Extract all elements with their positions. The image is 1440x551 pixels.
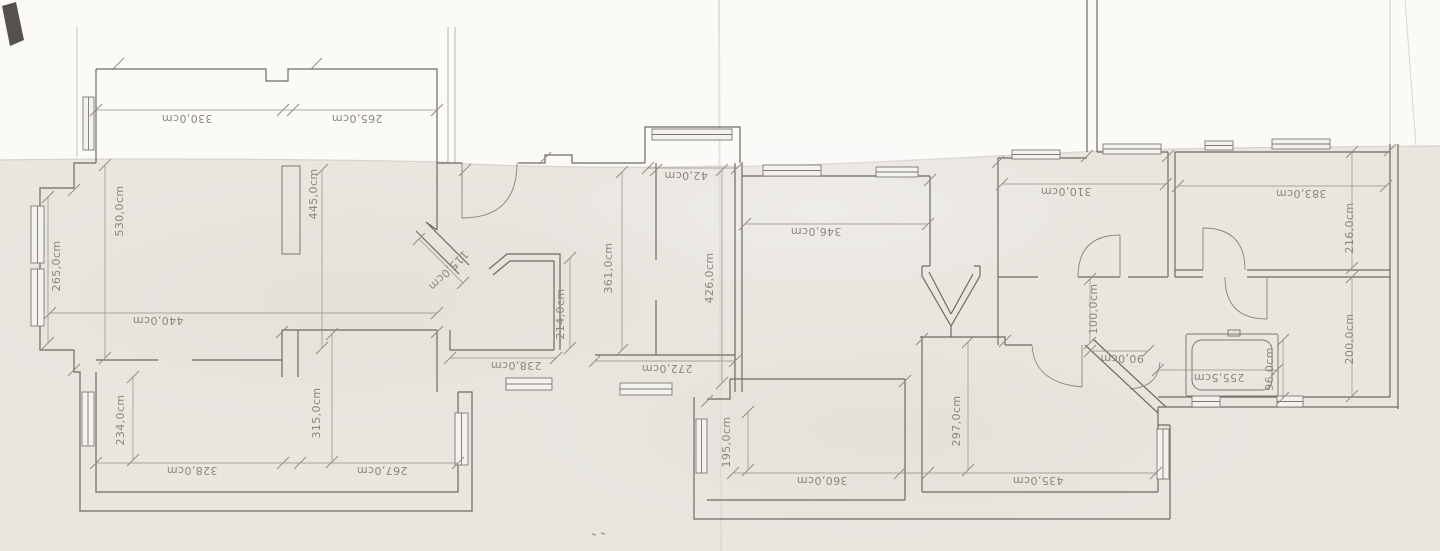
dimension-label: 267,0cm <box>356 464 407 477</box>
window <box>696 419 707 473</box>
window <box>763 165 821 176</box>
dimension-label: 195,0cm <box>720 416 733 467</box>
window <box>31 206 44 263</box>
window <box>1012 150 1060 159</box>
dimension-label: 238,0cm <box>490 359 541 372</box>
dimension-label: 200,0cm <box>1343 313 1356 364</box>
dimension-label: 360,0cm <box>796 474 847 487</box>
dimension-label: 435,0cm <box>1012 474 1063 487</box>
dimension-label: 310,0cm <box>1040 185 1091 198</box>
dimension-label: 315,0cm <box>310 387 323 438</box>
window <box>876 167 918 177</box>
window <box>1205 141 1233 150</box>
dimension-label: 265,0cm <box>331 112 382 125</box>
dimension-label: 361,0cm <box>602 242 615 293</box>
dimension-label: 96,0cm <box>1263 347 1276 391</box>
dimension-label: 216,0cm <box>1343 202 1356 253</box>
dimension-label: 100,0cm <box>1087 283 1100 334</box>
floor-plan-svg: 330,0cm265,0cm440,0cm328,0cm267,0cm238,0… <box>0 0 1440 551</box>
window <box>620 383 672 395</box>
dimension-label: 42,0cm <box>664 169 708 182</box>
dimension-label: 383,0cm <box>1275 187 1326 200</box>
dimension-label: 297,0cm <box>950 395 963 446</box>
dimension-label: 445,0cm <box>307 168 320 219</box>
window <box>506 378 552 390</box>
dimension-label: 440,0cm <box>132 314 183 327</box>
dimension-label: 255,5cm <box>1193 371 1244 384</box>
dimension-label: 530,0cm <box>113 185 126 236</box>
dimension-label: 346,0cm <box>790 225 841 238</box>
dimension-label: 234,0cm <box>114 394 127 445</box>
dimension-label: 272,0cm <box>641 362 692 375</box>
window <box>455 413 468 465</box>
window <box>1192 396 1220 407</box>
dimension-label: 214,0cm <box>554 288 567 339</box>
window <box>1103 144 1161 154</box>
dimension-label: 330,0cm <box>161 112 212 125</box>
window <box>1272 139 1330 149</box>
dimension-label: 265,0cm <box>50 240 63 291</box>
window <box>31 269 44 326</box>
window <box>83 97 94 150</box>
scanned-floor-plan-photo: 330,0cm265,0cm440,0cm328,0cm267,0cm238,0… <box>0 0 1440 551</box>
dimension-label: 426,0cm <box>703 252 716 303</box>
window <box>1277 396 1303 407</box>
window <box>1157 429 1169 479</box>
dimension-label: 328,0cm <box>166 464 217 477</box>
window <box>82 392 94 446</box>
dimension-label: 90,0cm <box>1100 352 1144 365</box>
window <box>652 129 732 140</box>
